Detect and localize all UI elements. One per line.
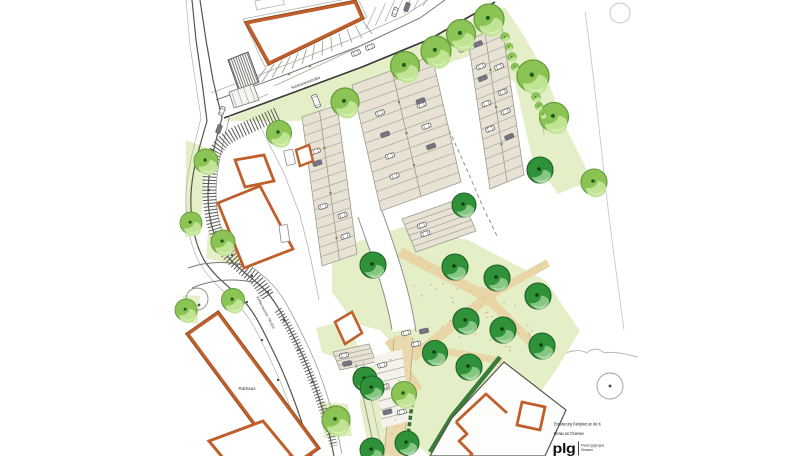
svg-text:plg: plg (553, 441, 576, 456)
svg-text:Rathaus: Rathaus (238, 386, 256, 391)
svg-text:Erweiterung Parkplatz an der K: Erweiterung Parkplatz an der K (554, 422, 601, 427)
svg-text:Strasser: Strasser (581, 448, 594, 452)
svg-text:Bernau am Chiemsee: Bernau am Chiemsee (554, 431, 585, 436)
